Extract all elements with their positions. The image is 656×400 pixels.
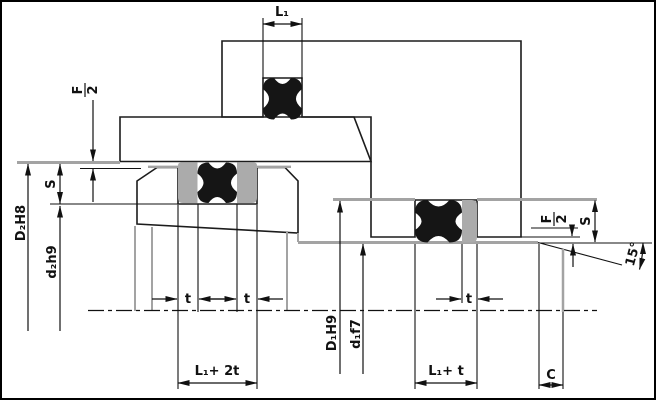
dim-label-t: t	[244, 292, 250, 307]
dim-label-l1: L₁	[275, 5, 289, 20]
dim-label-d2h8: D₂H8	[14, 205, 29, 241]
dim-label-t: t	[466, 292, 472, 307]
dim-label-l1-2t: L₁+ 2t	[195, 364, 240, 379]
seal-installation-drawing: L₁ F 2 S D₂H8 d₂h9 t t L₁+ 2t	[0, 0, 656, 400]
dim-label-s: S	[44, 179, 59, 188]
backup-ring-left-inner	[237, 163, 257, 204]
dim-label-2: 2	[86, 85, 101, 94]
dim-label-t: t	[185, 292, 191, 307]
dim-label-d2h9: d₂h9	[45, 245, 60, 278]
dim-label-f: F	[540, 215, 555, 224]
dim-label-f: F	[71, 86, 86, 95]
dim-label-d1h9: D₁H9	[325, 315, 340, 351]
dim-label-c: C	[546, 368, 556, 383]
backup-ring-left-outer	[178, 163, 198, 204]
dim-label-2: 2	[555, 214, 570, 223]
drawing-canvas: L₁ F 2 S D₂H8 d₂h9 t t L₁+ 2t	[0, 0, 656, 400]
dim-label-d1f7: d₁f7	[349, 319, 364, 349]
backup-ring-right	[462, 200, 477, 243]
dim-label-s: S	[579, 216, 594, 225]
dim-label-l1-t: L₁+ t	[428, 364, 464, 379]
